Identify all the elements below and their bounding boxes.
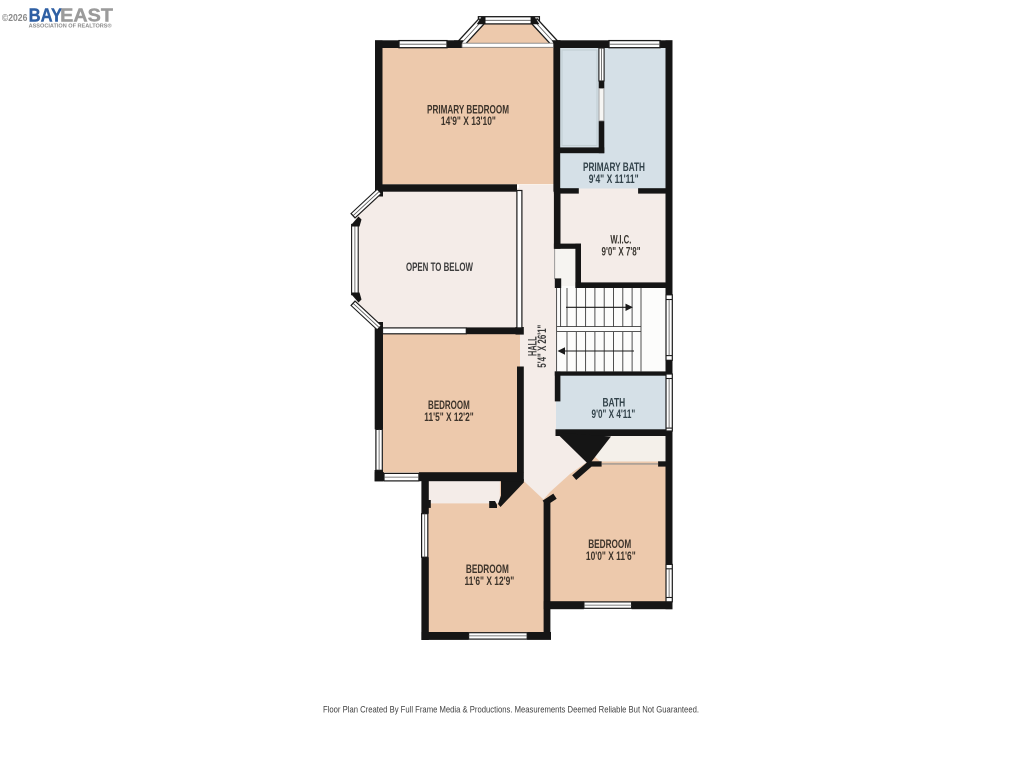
svg-text:11'5" X 12'2": 11'5" X 12'2" bbox=[424, 412, 473, 424]
svg-text:BEDROOM: BEDROOM bbox=[588, 539, 631, 551]
svg-text:11'6" X 12'9": 11'6" X 12'9" bbox=[465, 576, 515, 588]
svg-text:ASSOCIATION OF REALTORS®: ASSOCIATION OF REALTORS® bbox=[29, 22, 112, 29]
svg-text:9'0" X 4'11": 9'0" X 4'11" bbox=[592, 409, 636, 421]
svg-text:W.I.C.: W.I.C. bbox=[610, 235, 631, 247]
svg-text:PRIMARY BATH: PRIMARY BATH bbox=[583, 162, 645, 174]
svg-text:9'4" X 11'11": 9'4" X 11'11" bbox=[589, 174, 639, 186]
svg-text:BATH: BATH bbox=[602, 397, 625, 409]
svg-text:5'4" X 26'1": 5'4" X 26'1" bbox=[537, 325, 549, 368]
svg-text:9'0" X 7'8": 9'0" X 7'8" bbox=[602, 246, 641, 258]
svg-text:Floor Plan Created By Full Fra: Floor Plan Created By Full Frame Media &… bbox=[323, 705, 699, 716]
svg-text:PRIMARY BEDROOM: PRIMARY BEDROOM bbox=[427, 105, 509, 117]
svg-text:14'9" X 13'10": 14'9" X 13'10" bbox=[441, 116, 496, 128]
svg-text:10'0" X 11'6": 10'0" X 11'6" bbox=[586, 551, 636, 563]
svg-text:BEDROOM: BEDROOM bbox=[428, 400, 470, 412]
svg-text:BEDROOM: BEDROOM bbox=[466, 564, 509, 576]
svg-text:OPEN TO BELOW: OPEN TO BELOW bbox=[406, 262, 473, 274]
svg-text:©2026: ©2026 bbox=[2, 12, 28, 24]
